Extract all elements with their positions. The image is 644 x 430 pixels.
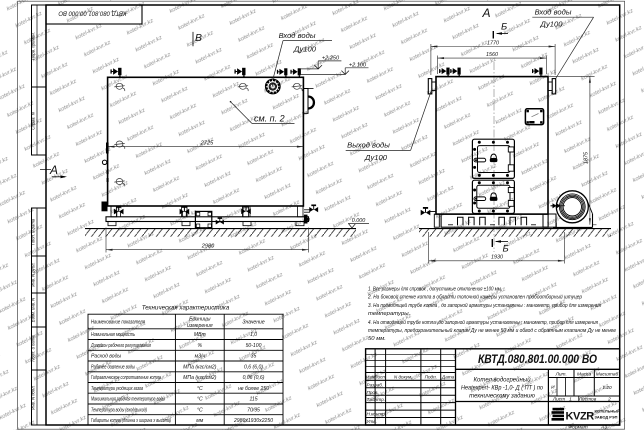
svg-text:Инв. N дубл.: Инв. N дубл. <box>31 262 36 286</box>
svg-text:Расход воды: Расход воды <box>91 354 121 360</box>
svg-text:0.000: 0.000 <box>352 218 366 224</box>
svg-text:0,06 (0,6): 0,06 (0,6) <box>243 375 265 381</box>
svg-text:35: 35 <box>251 354 257 360</box>
svg-text:115: 115 <box>249 397 257 403</box>
svg-text:Лист: Лист <box>552 396 565 402</box>
svg-text:см. п. 2: см. п. 2 <box>254 113 285 123</box>
svg-text:1560: 1560 <box>486 52 498 58</box>
svg-text:Б: Б <box>503 244 509 255</box>
svg-text:Ду100: Ду100 <box>540 19 564 28</box>
svg-text:Утв.: Утв. <box>367 419 377 424</box>
svg-text:1875: 1875 <box>583 151 589 164</box>
svg-text:м3/ч: м3/ч <box>195 354 206 360</box>
svg-text:КОТЕЛЬНЫЙ: КОТЕЛЬНЫЙ <box>595 409 621 414</box>
svg-text:Масштаб: Масштаб <box>596 372 619 378</box>
svg-text:И: И <box>551 385 555 391</box>
svg-text:МВт: МВт <box>194 332 206 338</box>
svg-text:Подп. и дата: Подп. и дата <box>31 335 36 362</box>
svg-text:Гидравлическое сопротивление к: Гидравлическое сопротивление котла <box>91 375 161 381</box>
svg-text:Наименование показателя: Наименование показателя <box>91 320 145 326</box>
svg-text:°С: °С <box>197 397 203 403</box>
svg-text:Пров.: Пров. <box>367 390 379 395</box>
svg-text:Выход воды: Выход воды <box>347 140 390 149</box>
svg-text:Значение: Значение <box>242 320 265 326</box>
svg-text:В: В <box>195 32 202 44</box>
svg-text:Heatexpert- КВр -1,0- Д ( ПТ ): Heatexpert- КВр -1,0- Д ( ПТ ) по <box>461 386 544 392</box>
svg-text:Габариты котла (длинна х ширин: Габариты котла (длинна х ширина х высота… <box>91 418 171 424</box>
svg-text:2. На боковой стенке котла в: 2. На боковой стенке котла в области топ… <box>367 294 582 301</box>
svg-text:Листов: Листов <box>578 396 597 402</box>
svg-text:50-100: 50-100 <box>246 343 262 349</box>
svg-text:Вход воды: Вход воды <box>279 31 316 40</box>
svg-text:0,6 (6,0): 0,6 (6,0) <box>244 364 263 370</box>
svg-text:2980: 2980 <box>201 243 215 249</box>
svg-text:Котел водогрейный: Котел водогрейный <box>473 377 531 384</box>
svg-text:%: % <box>198 343 203 349</box>
svg-text:Подп.: Подп. <box>425 375 437 380</box>
svg-text:Взам. инв. N: Взам. инв. N <box>31 297 36 322</box>
svg-text:Подп. и дата: Подп. и дата <box>31 218 36 245</box>
svg-text:1770: 1770 <box>487 40 499 46</box>
svg-text:Ду100: Ду100 <box>293 44 317 53</box>
svg-text:Т.контр.: Т.контр. <box>367 397 386 402</box>
svg-text:70/95: 70/95 <box>247 407 260 413</box>
svg-text:Справ. N: Справ. N <box>31 111 36 129</box>
svg-text:Номинальная мощность: Номинальная мощность <box>91 332 135 338</box>
svg-text:2: 2 <box>607 396 611 402</box>
svg-text:3. На подводящей трубе котла: 3. На подводящей трубе котла , до запорн… <box>368 302 602 309</box>
svg-text:Вход воды: Вход воды <box>535 7 572 16</box>
svg-text:1,0: 1,0 <box>250 332 257 338</box>
svg-text:°С: °С <box>197 386 203 392</box>
svg-text:Н.контр.: Н.контр. <box>367 412 386 417</box>
svg-text:Рабочее давление воды: Рабочее давление воды <box>91 364 135 370</box>
svg-text:А: А <box>49 163 58 177</box>
svg-text:Техническая характеристика: Техническая характеристика <box>142 305 230 312</box>
svg-text:Разраб.: Разраб. <box>367 382 384 387</box>
svg-text:температуры.: температуры. <box>368 311 410 317</box>
svg-text:50 мм.: 50 мм. <box>368 336 386 342</box>
svg-text:2980х1930х2250: 2980х1930х2250 <box>233 418 273 424</box>
svg-text:2725: 2725 <box>200 140 214 146</box>
svg-text:+2.100: +2.100 <box>349 63 367 69</box>
svg-text:Температура воды (вход/выход): Температура воды (вход/выход) <box>91 407 147 413</box>
svg-text:техническому заданию: техническому заданию <box>469 393 535 399</box>
svg-text:МПа (кгс/см2): МПа (кгс/см2) <box>183 364 217 370</box>
svg-text:Максимальная рабочая температу: Максимальная рабочая температура воды <box>91 397 165 403</box>
svg-text:Единицы: Единицы <box>189 317 211 323</box>
svg-text:КВТД.080.801.00.000 ВО: КВТД.080.801.00.000 ВО <box>478 352 598 366</box>
svg-text:Перв. примен.: Перв. примен. <box>31 32 36 60</box>
svg-text:А: А <box>482 6 491 20</box>
svg-text:Лит.: Лит. <box>555 372 567 378</box>
svg-text:ЗАВОД РЭП: ЗАВОД РЭП <box>595 415 618 420</box>
svg-text:температуры, предохранительный: температуры, предохранительный клапан Ду… <box>368 327 617 334</box>
svg-text:Инв. N подл.: Инв. N подл. <box>31 385 36 409</box>
svg-text:Лист: Лист <box>373 375 386 380</box>
svg-text:измерения: измерения <box>187 323 213 329</box>
svg-text:мм: мм <box>196 418 203 424</box>
svg-text:1:20: 1:20 <box>602 385 612 391</box>
svg-text:KVZR: KVZR <box>566 410 595 422</box>
svg-text:Дата: Дата <box>441 375 455 380</box>
svg-text:КВТД.080.801.00.000 ВО: КВТД.080.801.00.000 ВО <box>58 10 126 17</box>
svg-text:+2.250: +2.250 <box>322 56 340 62</box>
svg-text:Диапазон рабочего регулировани: Диапазон рабочего регулирования <box>90 343 151 349</box>
svg-text:4. На отводящей трубе котла ,: 4. На отводящей трубе котла ,до запорной… <box>368 319 599 326</box>
svg-text:1930: 1930 <box>491 254 503 260</box>
svg-text:Б: Б <box>501 22 507 33</box>
svg-text:°С: °С <box>197 407 203 413</box>
svg-text:N докум.: N докум. <box>394 375 413 380</box>
svg-text:не более 250: не более 250 <box>238 386 269 392</box>
svg-text:Ду100: Ду100 <box>364 153 388 162</box>
svg-text:Температура уходящих газов: Температура уходящих газов <box>91 386 143 392</box>
svg-text:Формат: Формат <box>568 425 587 430</box>
svg-text:А3: А3 <box>600 425 607 430</box>
svg-text:МПа (кгс/см2): МПа (кгс/см2) <box>183 375 217 381</box>
svg-text:1. Все размеры для справок ,: 1. Все размеры для справок , допустимые … <box>368 287 502 293</box>
svg-text:Масса: Масса <box>577 372 592 378</box>
svg-text:1: 1 <box>569 396 572 402</box>
